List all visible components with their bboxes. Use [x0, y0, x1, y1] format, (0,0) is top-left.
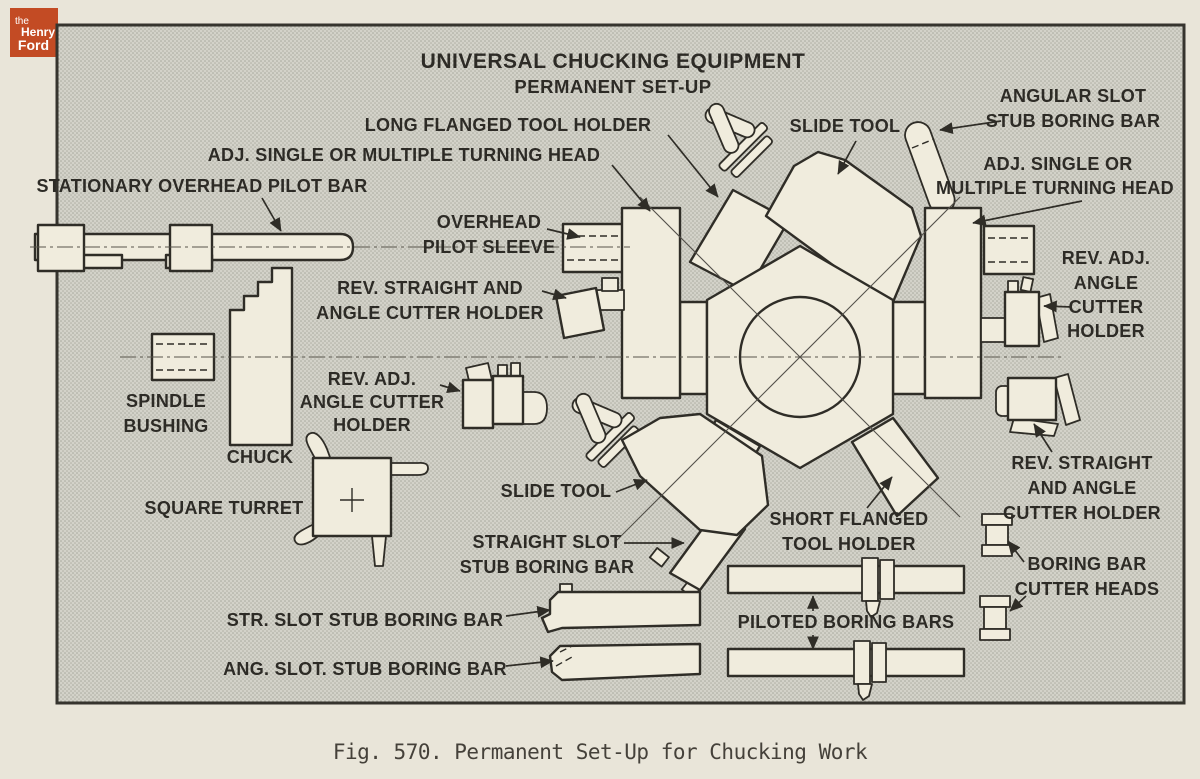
label-rev-adj-left-3: HOLDER — [333, 415, 411, 435]
figure-caption: Fig. 570. Permanent Set-Up for Chucking … — [0, 740, 1200, 764]
label-str-slot: STR. SLOT STUB BORING BAR — [227, 610, 504, 630]
diagram-subtitle: PERMANENT SET-UP — [514, 76, 711, 97]
label-overhead-pilot-sleeve-1: OVERHEAD — [437, 212, 541, 232]
label-rev-adj-left-1: REV. ADJ. — [328, 369, 416, 389]
diagram-figure: UNIVERSAL CHUCKING EQUIPMENT PERMANENT S… — [0, 0, 1200, 779]
label-ang-slot: ANG. SLOT. STUB BORING BAR — [223, 659, 507, 679]
label-rev-adj-right-4: HOLDER — [1067, 321, 1145, 341]
label-short-flanged-1: SHORT FLANGED — [770, 509, 929, 529]
label-rev-straight-left-1: REV. STRAIGHT AND — [337, 278, 523, 298]
scanned-page: the Henry Ford — [0, 0, 1200, 779]
label-slide-tool-top: SLIDE TOOL — [790, 116, 901, 136]
label-rev-straight-right-1: REV. STRAIGHT — [1011, 453, 1152, 473]
diagram-title: UNIVERSAL CHUCKING EQUIPMENT — [421, 50, 806, 73]
label-straight-slot-2: STUB BORING BAR — [460, 557, 635, 577]
label-adj-turning-head-left: ADJ. SINGLE OR MULTIPLE TURNING HEAD — [208, 145, 600, 165]
label-square-turret: SQUARE TURRET — [145, 498, 304, 518]
label-overhead-pilot-sleeve-2: PILOT SLEEVE — [423, 237, 556, 257]
label-long-flanged-tool-holder: LONG FLANGED TOOL HOLDER — [365, 115, 652, 135]
label-piloted-boring-bars: PILOTED BORING BARS — [738, 612, 955, 632]
label-rev-adj-right-1: REV. ADJ. — [1062, 248, 1150, 268]
label-spindle-bushing-2: BUSHING — [123, 416, 208, 436]
str-slot-stub-boring-bar-drawing — [542, 584, 700, 632]
label-rev-straight-left-2: ANGLE CUTTER HOLDER — [316, 303, 544, 323]
label-short-flanged-2: TOOL HOLDER — [782, 534, 916, 554]
label-adj-turning-head-right-2: MULTIPLE TURNING HEAD — [936, 178, 1174, 198]
label-angular-slot-1: ANGULAR SLOT — [1000, 86, 1147, 106]
label-rev-adj-right-2: ANGLE — [1074, 273, 1139, 293]
label-cutter-heads-1: BORING BAR — [1028, 554, 1147, 574]
label-cutter-heads-2: CUTTER HEADS — [1015, 579, 1160, 599]
label-rev-adj-right-3: CUTTER — [1069, 297, 1144, 317]
label-rev-adj-left-2: ANGLE CUTTER — [300, 392, 445, 412]
label-straight-slot-1: STRAIGHT SLOT — [473, 532, 622, 552]
label-angular-slot-2: STUB BORING BAR — [986, 111, 1161, 131]
label-rev-straight-right-3: CUTTER HOLDER — [1003, 503, 1161, 523]
ang-slot-stub-boring-bar-drawing — [550, 644, 700, 680]
label-slide-tool-bottom: SLIDE TOOL — [501, 481, 612, 501]
label-spindle-bushing-1: SPINDLE — [126, 391, 206, 411]
label-chuck: CHUCK — [227, 447, 294, 467]
label-adj-turning-head-right-1: ADJ. SINGLE OR — [983, 154, 1132, 174]
label-rev-straight-right-2: AND ANGLE — [1027, 478, 1136, 498]
label-stationary-pilot-bar: STATIONARY OVERHEAD PILOT BAR — [36, 176, 367, 196]
